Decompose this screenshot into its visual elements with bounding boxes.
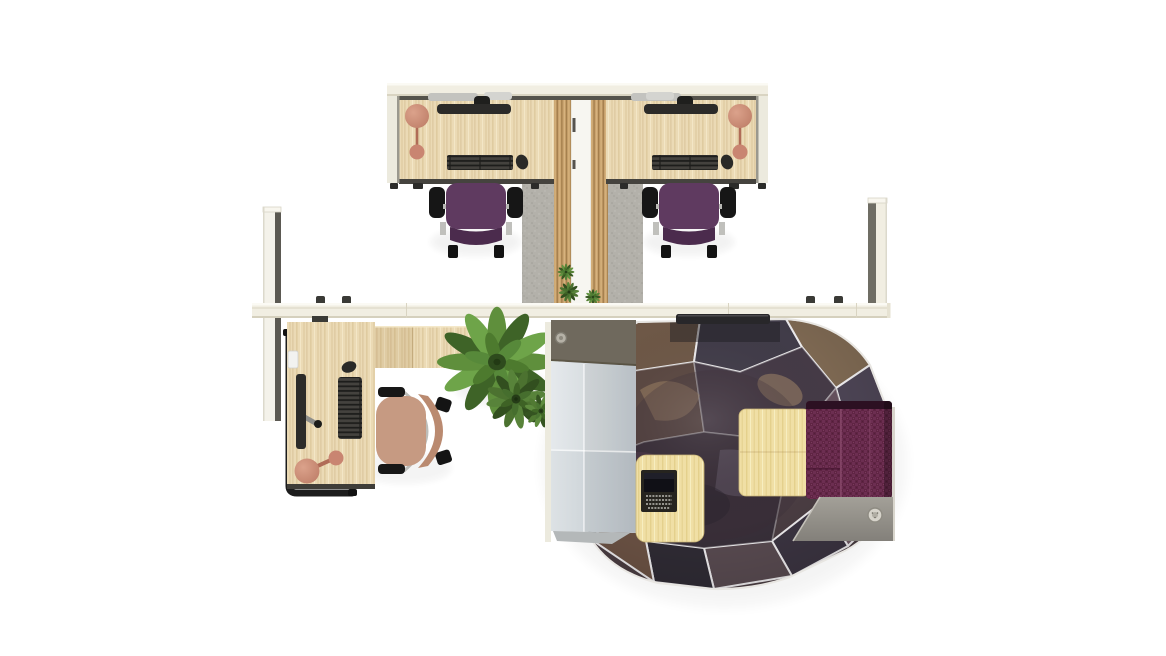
- manager-desk-edge: [287, 484, 375, 489]
- floor-tile-right: [608, 183, 643, 303]
- manager-monitor: [296, 374, 306, 449]
- chair-seat-tan: [376, 396, 426, 466]
- monitor-arm-a: [428, 93, 478, 101]
- manager-monitor-joint: [314, 420, 322, 428]
- laptop: [641, 470, 677, 512]
- monitor-a: [437, 104, 511, 114]
- pod-table-laptop: [636, 455, 704, 542]
- keyboard-a: [447, 155, 513, 170]
- side-screen-right-edge: [756, 96, 759, 183]
- bench-seam: [869, 409, 871, 499]
- pod-edge-strip: [545, 322, 551, 542]
- monitor-arm-bracket-b: [646, 92, 674, 100]
- top-wall-highlight: [387, 83, 768, 86]
- desk-wall-connector: [312, 316, 328, 323]
- credenza-joint-panel: [375, 326, 412, 368]
- wall-horizontal-bottom-edge: [252, 316, 890, 318]
- slat-wall-right: [591, 90, 608, 305]
- pod-table-large: [739, 409, 810, 496]
- wall-left-cap: [263, 207, 281, 212]
- manager-keyboard: [338, 377, 362, 439]
- pod-entry-panels: [545, 320, 636, 544]
- lamp-shade-a: [405, 104, 429, 128]
- divider-bracket: [573, 160, 576, 169]
- bench-seam: [840, 409, 842, 499]
- office-plan-render: [0, 0, 1166, 656]
- lamp-shade-b: [728, 104, 752, 128]
- wall-horizontal-end-cap: [887, 303, 891, 318]
- wall-horizontal-highlight: [252, 303, 890, 306]
- side-screen-left-edge: [397, 96, 400, 183]
- manager-lamp-shade: [295, 459, 320, 484]
- wall-right-dark-edge: [868, 198, 876, 310]
- bench-back-edge: [806, 401, 892, 409]
- wall-right-cap: [868, 198, 887, 203]
- bench-side-shade: [884, 401, 892, 499]
- manager-chair: [376, 387, 453, 474]
- wall-vertical-right: [868, 198, 887, 310]
- lamp-base-b: [733, 145, 748, 160]
- render-canvas: [0, 0, 1166, 656]
- chair-armrest-bottom: [378, 464, 405, 474]
- desk-frame-foot: [348, 489, 357, 496]
- wall-right-face: [876, 198, 887, 310]
- lamp-base-a: [410, 145, 425, 160]
- bench-cushion: [806, 401, 892, 499]
- keyboard-b: [652, 155, 718, 170]
- divider-bracket: [573, 118, 576, 132]
- chair-armrest-top: [378, 387, 405, 397]
- monitor-b: [644, 104, 718, 114]
- cpu-holder: [288, 351, 298, 368]
- floor-tile-left: [522, 183, 557, 303]
- manager-lamp-base: [329, 451, 344, 466]
